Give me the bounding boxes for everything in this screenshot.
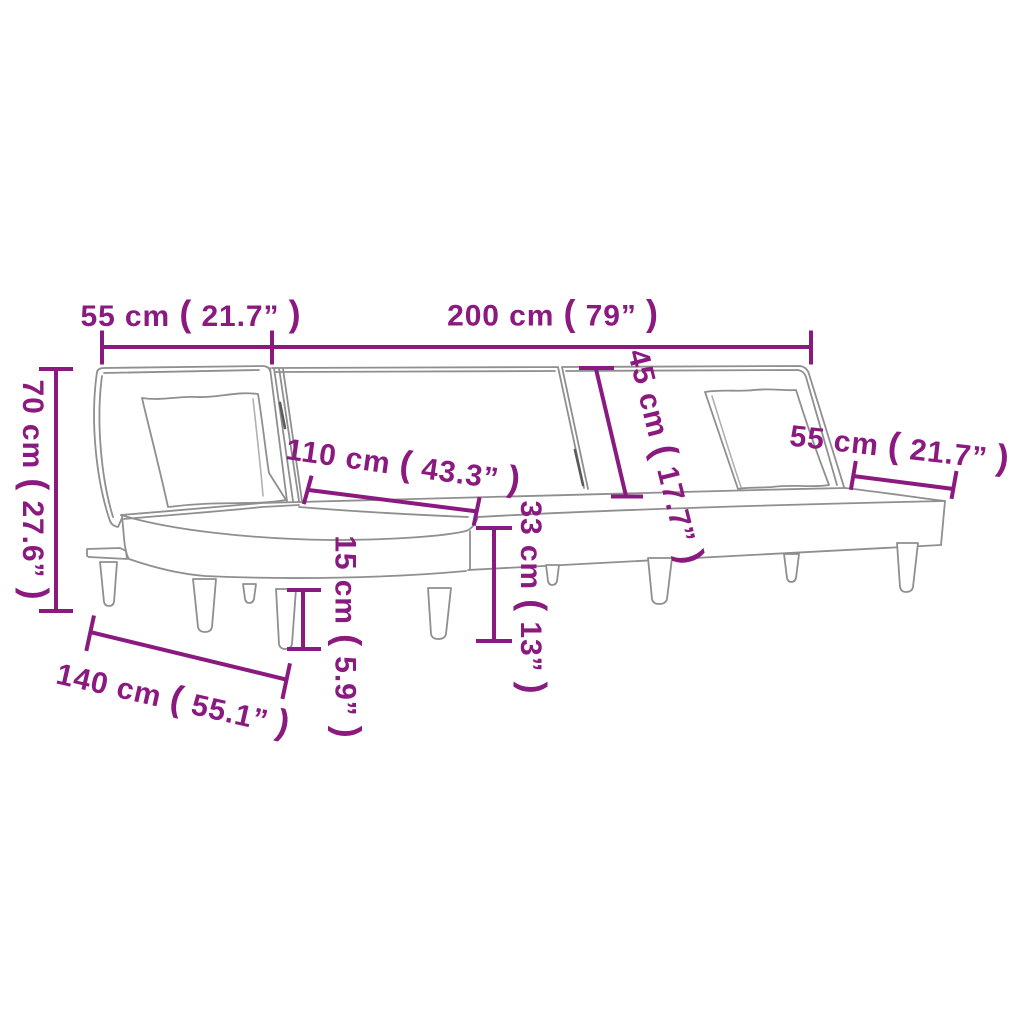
svg-text:55 cm ( 21.7” ): 55 cm ( 21.7” ) [81, 293, 302, 334]
svg-text:200 cm ( 79” ): 200 cm ( 79” ) [447, 293, 659, 334]
svg-text:33 cm ( 13” ): 33 cm ( 13” ) [513, 500, 554, 694]
svg-text:70 cm ( 27.6” ): 70 cm ( 27.6” ) [15, 380, 56, 601]
svg-text:15 cm ( 5.9” ): 15 cm ( 5.9” ) [328, 535, 369, 738]
